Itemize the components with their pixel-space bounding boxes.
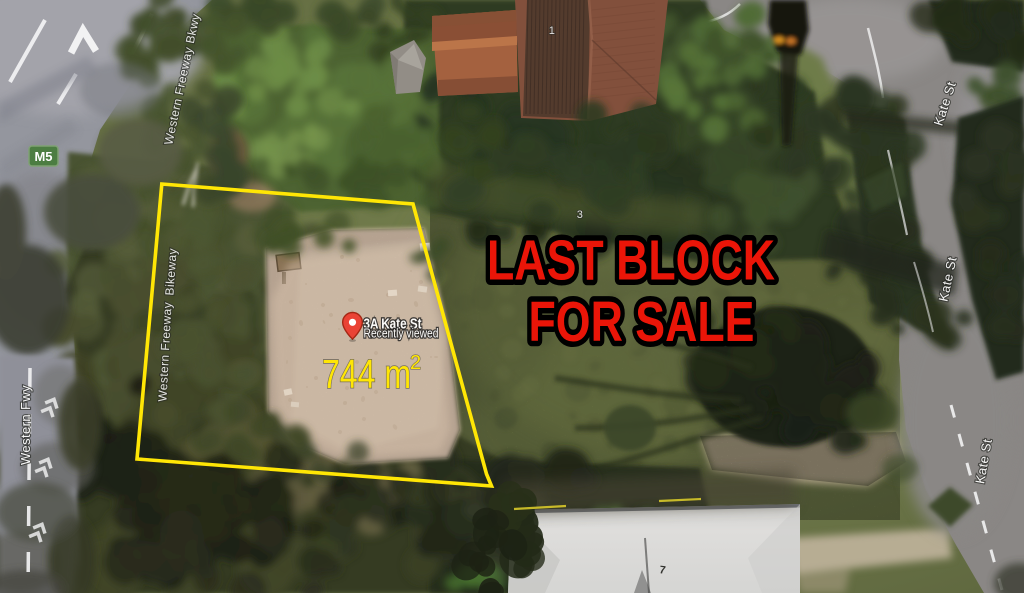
svg-text:Recently viewed: Recently viewed [364,327,439,341]
svg-text:3: 3 [577,209,584,221]
svg-text:744 m: 744 m [322,351,411,397]
svg-text:1: 1 [549,25,556,37]
svg-text:2: 2 [410,352,421,374]
svg-text:M5: M5 [34,149,52,164]
svg-text:LAST BLOCK: LAST BLOCK [487,229,775,293]
svg-text:Western Fwy: Western Fwy [18,385,33,465]
svg-text:FOR SALE: FOR SALE [529,290,755,354]
